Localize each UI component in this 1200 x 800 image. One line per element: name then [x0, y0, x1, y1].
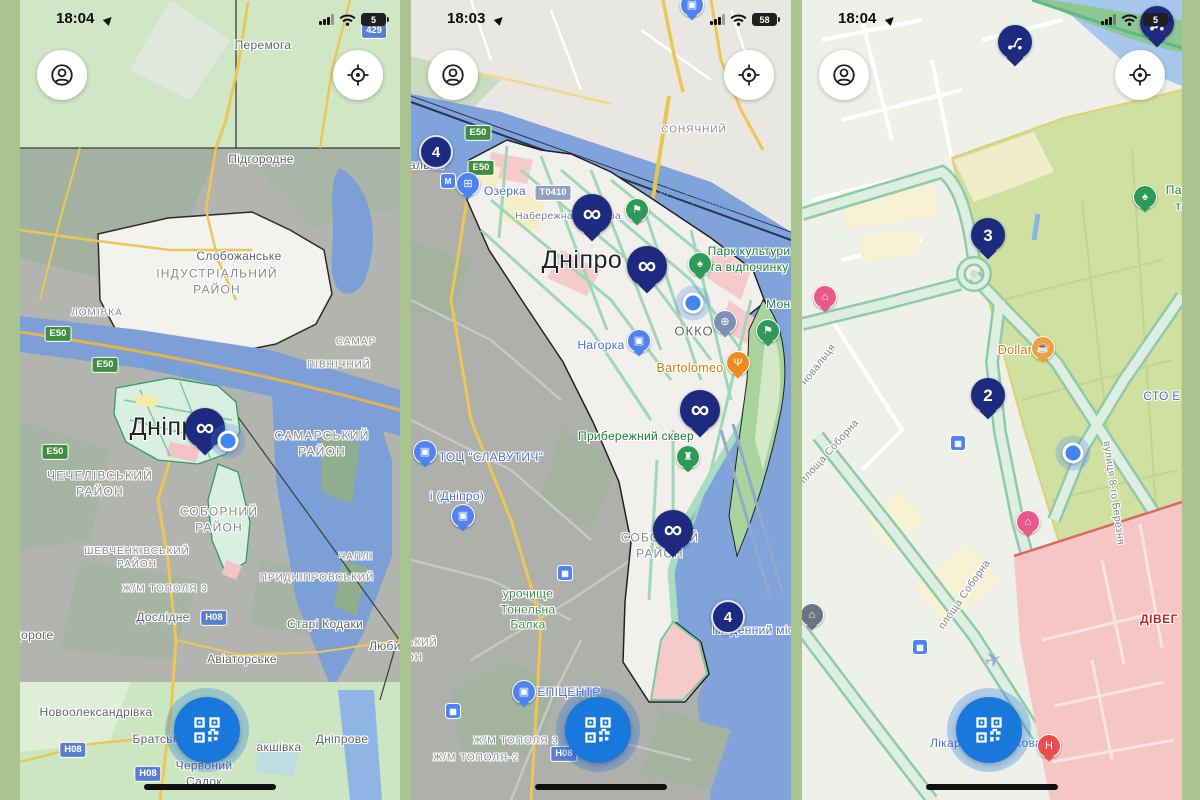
- tram-station-icon[interactable]: ▦: [950, 435, 966, 451]
- map-label: ЧАПЛІ: [339, 551, 374, 564]
- map-label: Перемога: [235, 38, 292, 54]
- locate-button[interactable]: [724, 50, 774, 100]
- map-label: Ж/М ТОПОЛЯ 3: [122, 583, 208, 596]
- monument-poi-pin[interactable]: ♜: [676, 445, 700, 469]
- map-label: ПІВНІЧНИЙ: [307, 359, 371, 372]
- qr-code-icon: [192, 715, 222, 745]
- map-label[interactable]: та відпочинку: [1175, 199, 1182, 215]
- map-label: Авіаторське: [207, 652, 277, 668]
- road-badge: Е50: [465, 125, 492, 141]
- hotel-poi-pin[interactable]: ⌂: [1016, 510, 1040, 534]
- road-badge: Е50: [45, 326, 72, 342]
- profile-button[interactable]: [819, 50, 869, 100]
- map-label: ЧЕЧЕЛІВСЬКИЙ РАЙОН: [47, 468, 153, 499]
- shopping-poi-pin[interactable]: ⊞: [456, 172, 480, 196]
- qr-code-icon: [583, 715, 613, 745]
- home-indicator[interactable]: [144, 784, 276, 790]
- map-label: ШЕВЧЕНКІВСЬКИЙ РАЙОН: [84, 545, 190, 571]
- road-badge: Т0410: [535, 185, 572, 201]
- phone-screenshot-2: СОНЯЧНИЙЕ50Е50ВокзальнаОзеркаТ0410Набере…: [411, 0, 791, 800]
- cellular-signal-icon: [1101, 14, 1116, 25]
- battery-icon: 5: [361, 13, 386, 26]
- map-label: площа Соборна: [802, 417, 862, 487]
- scooter-count-marker[interactable]: 3: [971, 218, 1005, 252]
- trail-poi-pin[interactable]: ⚑: [625, 198, 649, 222]
- map-label: Любимів: [369, 639, 400, 655]
- infinity-scooter-marker[interactable]: ∞: [680, 390, 720, 430]
- map-label[interactable]: Парк: [1166, 183, 1182, 199]
- map-label: Дніпрове: [316, 732, 369, 748]
- wifi-icon: [1121, 14, 1138, 26]
- cellular-signal-icon: [319, 14, 334, 25]
- map-label: РАЙОН: [411, 652, 423, 665]
- battery-icon: 58: [752, 13, 777, 26]
- map-label: СОБОРНИЙ РАЙОН: [180, 504, 258, 535]
- map-overlay: СОНЯЧНИЙЕ50Е50ВокзальнаОзеркаТ0410Набере…: [411, 0, 791, 800]
- scooter-count-badge[interactable]: 4: [419, 135, 453, 169]
- map-label[interactable]: ОККО: [674, 324, 713, 341]
- road-badge: Е50: [92, 357, 119, 373]
- map-label[interactable]: Озерка: [484, 184, 526, 200]
- qr-scan-button[interactable]: [174, 697, 240, 763]
- location-arrow-icon: ▶: [883, 12, 898, 27]
- qr-scan-button[interactable]: [956, 697, 1022, 763]
- map-label: Дніпро: [542, 244, 623, 277]
- status-time: 18:03: [447, 10, 485, 27]
- map-label[interactable]: Bartolomeo: [657, 360, 724, 376]
- wifi-icon: [730, 14, 747, 26]
- qr-code-icon: [974, 715, 1004, 745]
- status-bar: 18:04 ▶ 5: [802, 0, 1182, 40]
- locate-button[interactable]: [1115, 50, 1165, 100]
- map-label: Ж/М ТОПОЛЯ-2: [433, 752, 519, 765]
- train-station-icon[interactable]: ▦: [557, 565, 573, 581]
- map-label: САМАР: [336, 336, 376, 349]
- home-indicator[interactable]: [535, 784, 667, 790]
- phone-screenshot-1: ПеремогаПідгороднеСлобожанськеІНДУСТРІАЛ…: [20, 0, 400, 800]
- map-overlay: Паркта відпочинкуDollarСТО Еновальцяплощ…: [802, 0, 1182, 800]
- infinity-scooter-marker[interactable]: ∞: [572, 194, 612, 234]
- map-label: Слобожанське: [196, 249, 281, 265]
- map-label[interactable]: ДІВЕГ: [1140, 612, 1178, 628]
- tram-station-icon[interactable]: ▦: [912, 639, 928, 655]
- map-label: новальця: [802, 342, 839, 389]
- park-poi-pin[interactable]: ♠: [688, 252, 712, 276]
- map-overlay: ПеремогаПідгороднеСлобожанськеІНДУСТРІАЛ…: [20, 0, 400, 800]
- current-location-dot: [218, 431, 239, 452]
- map-label: урочище Тонельна Балка: [501, 587, 556, 634]
- shopping-poi-pin[interactable]: ▣: [413, 440, 437, 464]
- qr-scan-button[interactable]: [565, 697, 631, 763]
- shopping-poi-pin[interactable]: ▣: [512, 680, 536, 704]
- current-location-dot: [1063, 443, 1084, 464]
- road-badge: Н08: [59, 742, 86, 758]
- profile-icon: [49, 62, 75, 88]
- map-label: Дослідне: [136, 610, 189, 626]
- scooter-count-marker[interactable]: 2: [971, 378, 1005, 412]
- map-label: Підгородне: [228, 152, 293, 168]
- status-time: 18:04: [838, 10, 876, 27]
- location-arrow-icon: ▶: [492, 12, 507, 27]
- map-label: Ж/М ТОПОЛЯ 3: [473, 735, 559, 748]
- phone-screenshot-3: Паркта відпочинкуDollarСТО Еновальцяплощ…: [802, 0, 1182, 800]
- map-label: вулиця 8-го Березня: [1099, 440, 1127, 546]
- map-label[interactable]: ТОЦ "СЛАВУТИЧ": [439, 450, 543, 466]
- profile-icon: [440, 62, 466, 88]
- profile-icon: [831, 62, 857, 88]
- map-label[interactable]: Парк культури: [708, 244, 791, 260]
- map-label: акшівка: [257, 740, 302, 756]
- crosshair-icon: [737, 63, 761, 87]
- map-label[interactable]: і (Дніпро): [430, 489, 484, 505]
- screenshot-collage: ПеремогаПідгороднеСлобожанськеІНДУСТРІАЛ…: [0, 0, 1200, 800]
- map-label[interactable]: Монастирський: [766, 297, 791, 313]
- hospital-poi-pin[interactable]: H: [1037, 734, 1061, 758]
- museum-poi-pin[interactable]: ⌂: [802, 603, 824, 627]
- map-label: площа Соборна: [936, 558, 994, 633]
- map-label: річка Дніпро: [145, 356, 221, 390]
- location-arrow-icon: ▶: [101, 12, 116, 27]
- map-label: СОНЯЧНИЙ: [661, 124, 727, 137]
- infinity-scooter-marker[interactable]: ∞: [627, 246, 667, 286]
- map-label[interactable]: Прибережний сквер: [578, 429, 694, 445]
- map-label: Дороге: [20, 628, 53, 644]
- locate-button[interactable]: [333, 50, 383, 100]
- map-label: САМАРСЬКИЙ РАЙОН: [274, 428, 369, 459]
- battery-icon: 5: [1143, 13, 1168, 26]
- road-badge: Н08: [200, 610, 227, 626]
- restaurant-poi-pin[interactable]: Ψ: [726, 351, 750, 375]
- crosshair-icon: [346, 63, 370, 87]
- map-label: ПРИДНІПРОВСЬКИЙ: [260, 572, 375, 585]
- map-label[interactable]: та відпочинку: [709, 260, 788, 276]
- map-label: річка Дніпро: [658, 184, 734, 216]
- profile-button[interactable]: [37, 50, 87, 100]
- scooter-count-badge[interactable]: 4: [711, 600, 745, 634]
- infinity-scooter-marker[interactable]: ∞: [653, 510, 693, 550]
- trail-poi-pin[interactable]: ⚑: [756, 319, 780, 343]
- shopping-poi-pin[interactable]: ▣: [627, 329, 651, 353]
- bus-station-icon[interactable]: ▦: [445, 703, 461, 719]
- map-label: Старі Кодаки: [287, 617, 363, 633]
- map-label[interactable]: Нагорка: [577, 338, 624, 354]
- cafe-poi-pin[interactable]: ☕: [1031, 336, 1055, 360]
- status-bar: 18:04 ▶ 5: [20, 0, 400, 40]
- fuel-station-poi-pin[interactable]: ⊕: [713, 310, 737, 334]
- cellular-signal-icon: [710, 14, 725, 25]
- crosshair-icon: [1128, 63, 1152, 87]
- road-badge: Е50: [42, 444, 69, 460]
- road-badge: Н08: [134, 766, 161, 782]
- map-label: ЛОМІВКА: [71, 307, 123, 320]
- map-label: ШЕВЧЕНКІВСЬКИЙ: [411, 637, 438, 650]
- metro-station-icon[interactable]: М: [440, 173, 456, 189]
- shopping-poi-pin[interactable]: ▣: [451, 504, 475, 528]
- status-bar: 18:03 ▶ 58: [411, 0, 791, 40]
- home-indicator[interactable]: [926, 784, 1058, 790]
- airfield-symbol: ✈: [981, 645, 1005, 674]
- map-label: Новоолександрівка: [39, 705, 152, 721]
- map-label[interactable]: Dollar: [998, 342, 1032, 358]
- status-time: 18:04: [56, 10, 94, 27]
- profile-button[interactable]: [428, 50, 478, 100]
- wifi-icon: [339, 14, 356, 26]
- current-location-dot: [683, 293, 704, 314]
- map-label[interactable]: СТО Е: [1143, 389, 1180, 405]
- hotel-poi-pin[interactable]: ⌂: [813, 285, 837, 309]
- map-label: ІНДУСТРІАЛЬНИЙ РАЙОН: [156, 266, 278, 297]
- park-poi-pin[interactable]: ♠: [1133, 185, 1157, 209]
- map-label: Набережна: [515, 210, 573, 224]
